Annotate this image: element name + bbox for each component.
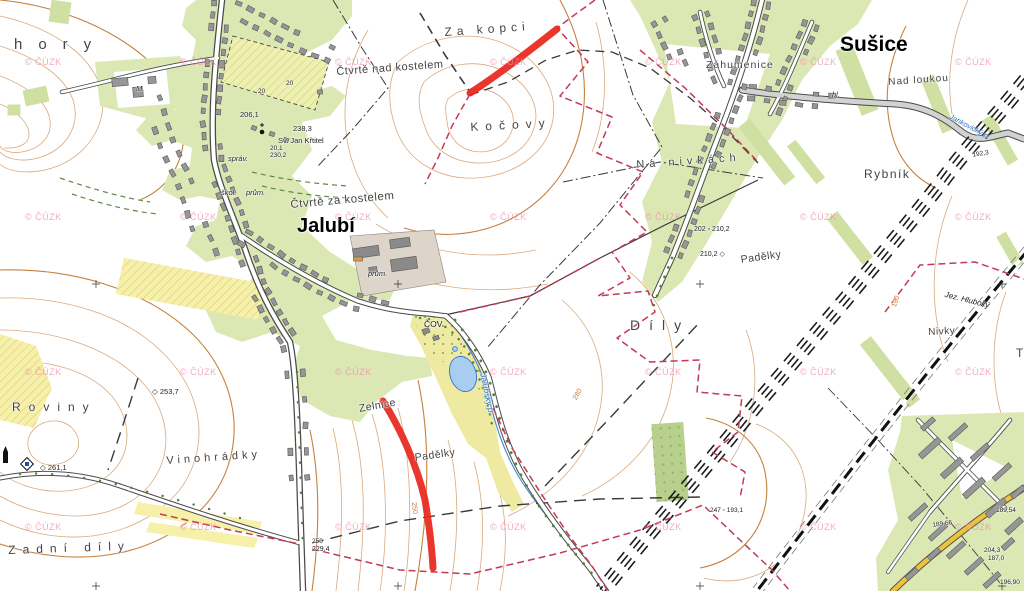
building (714, 112, 720, 119)
building (288, 448, 293, 456)
building (219, 155, 224, 162)
building (747, 96, 755, 101)
building (304, 474, 310, 480)
building (760, 25, 765, 32)
building (133, 87, 144, 98)
building (218, 143, 223, 149)
building (215, 109, 220, 115)
building (369, 266, 378, 273)
building (280, 345, 286, 352)
building (704, 52, 709, 58)
building (813, 92, 819, 96)
building (354, 257, 363, 261)
building (203, 72, 209, 78)
building (209, 23, 214, 31)
building (201, 95, 207, 103)
building (203, 84, 207, 91)
building (220, 60, 225, 68)
map-viewport[interactable]: horyČtvrtě nad kostelemZa kopciKočovySuš… (0, 0, 1024, 591)
building (201, 108, 205, 114)
building (716, 48, 722, 54)
building (304, 448, 308, 456)
building (751, 0, 757, 6)
building (829, 93, 836, 98)
building (212, 0, 217, 6)
building (318, 90, 323, 94)
building (749, 84, 757, 88)
building (112, 77, 129, 86)
building (205, 59, 209, 67)
building (225, 215, 231, 222)
building (184, 210, 190, 218)
building (222, 37, 228, 43)
building (210, 11, 215, 18)
building (300, 369, 306, 377)
building (202, 145, 208, 151)
building (708, 23, 714, 30)
building (289, 475, 294, 481)
building (202, 132, 206, 140)
building (219, 73, 224, 79)
building (200, 120, 206, 127)
building (765, 86, 771, 92)
building (779, 100, 786, 106)
building (302, 396, 306, 402)
map-canvas (0, 0, 1024, 591)
building (221, 49, 226, 56)
building (812, 103, 818, 108)
building (285, 371, 290, 379)
building (741, 83, 747, 90)
building (745, 22, 751, 29)
building (236, 249, 241, 255)
building (148, 76, 157, 84)
building (218, 85, 223, 92)
building (766, 2, 771, 10)
building (303, 422, 308, 429)
building (353, 306, 359, 312)
building (224, 25, 228, 33)
building (764, 98, 770, 103)
building (357, 293, 363, 298)
